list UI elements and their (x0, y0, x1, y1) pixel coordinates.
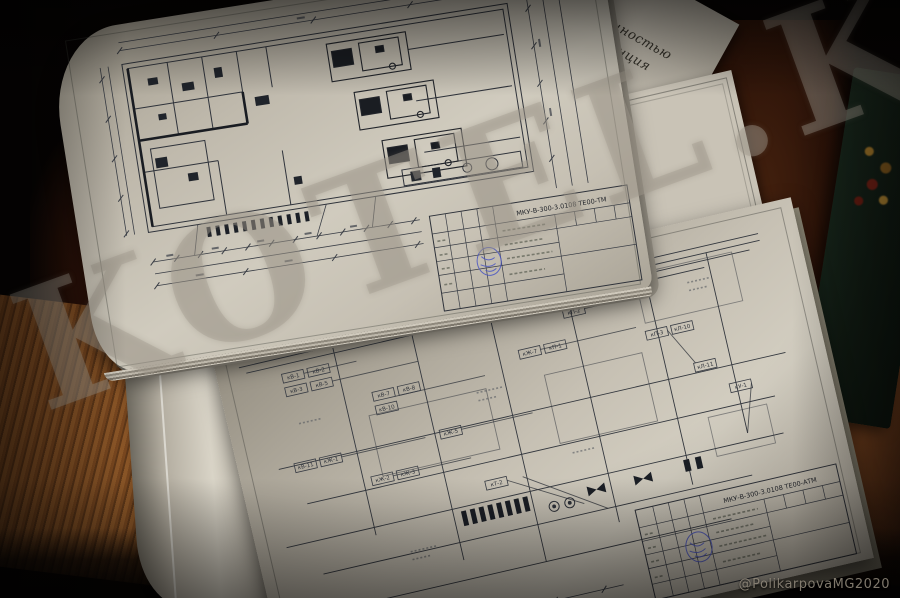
svg-text:кВ-8: кВ-8 (402, 385, 416, 394)
photo-credit: @PolikarpovaMG2020 (739, 577, 890, 592)
svg-text:кВ-2: кВ-2 (312, 367, 326, 376)
svg-text:кУ-1: кУ-1 (734, 382, 747, 391)
svg-text:кП-3: кП-3 (650, 330, 664, 339)
approval-stamp-bottom (683, 529, 715, 564)
svg-text:кП-1: кП-1 (548, 343, 562, 352)
doc-code-bottom: МКУ-В-300-3.0108 ТЕ00-АТМ (723, 476, 818, 505)
svg-text:кВ-1: кВ-1 (287, 373, 301, 382)
valve-cluster (461, 456, 704, 526)
svg-text:кВ-5: кВ-5 (315, 381, 329, 390)
photo-canvas: щностью танция нического ние (0, 0, 900, 598)
svg-text:кТ-2: кТ-2 (490, 480, 503, 489)
svg-text:кВ-7: кВ-7 (377, 391, 391, 400)
svg-text:кВ-3: кВ-3 (290, 386, 304, 395)
